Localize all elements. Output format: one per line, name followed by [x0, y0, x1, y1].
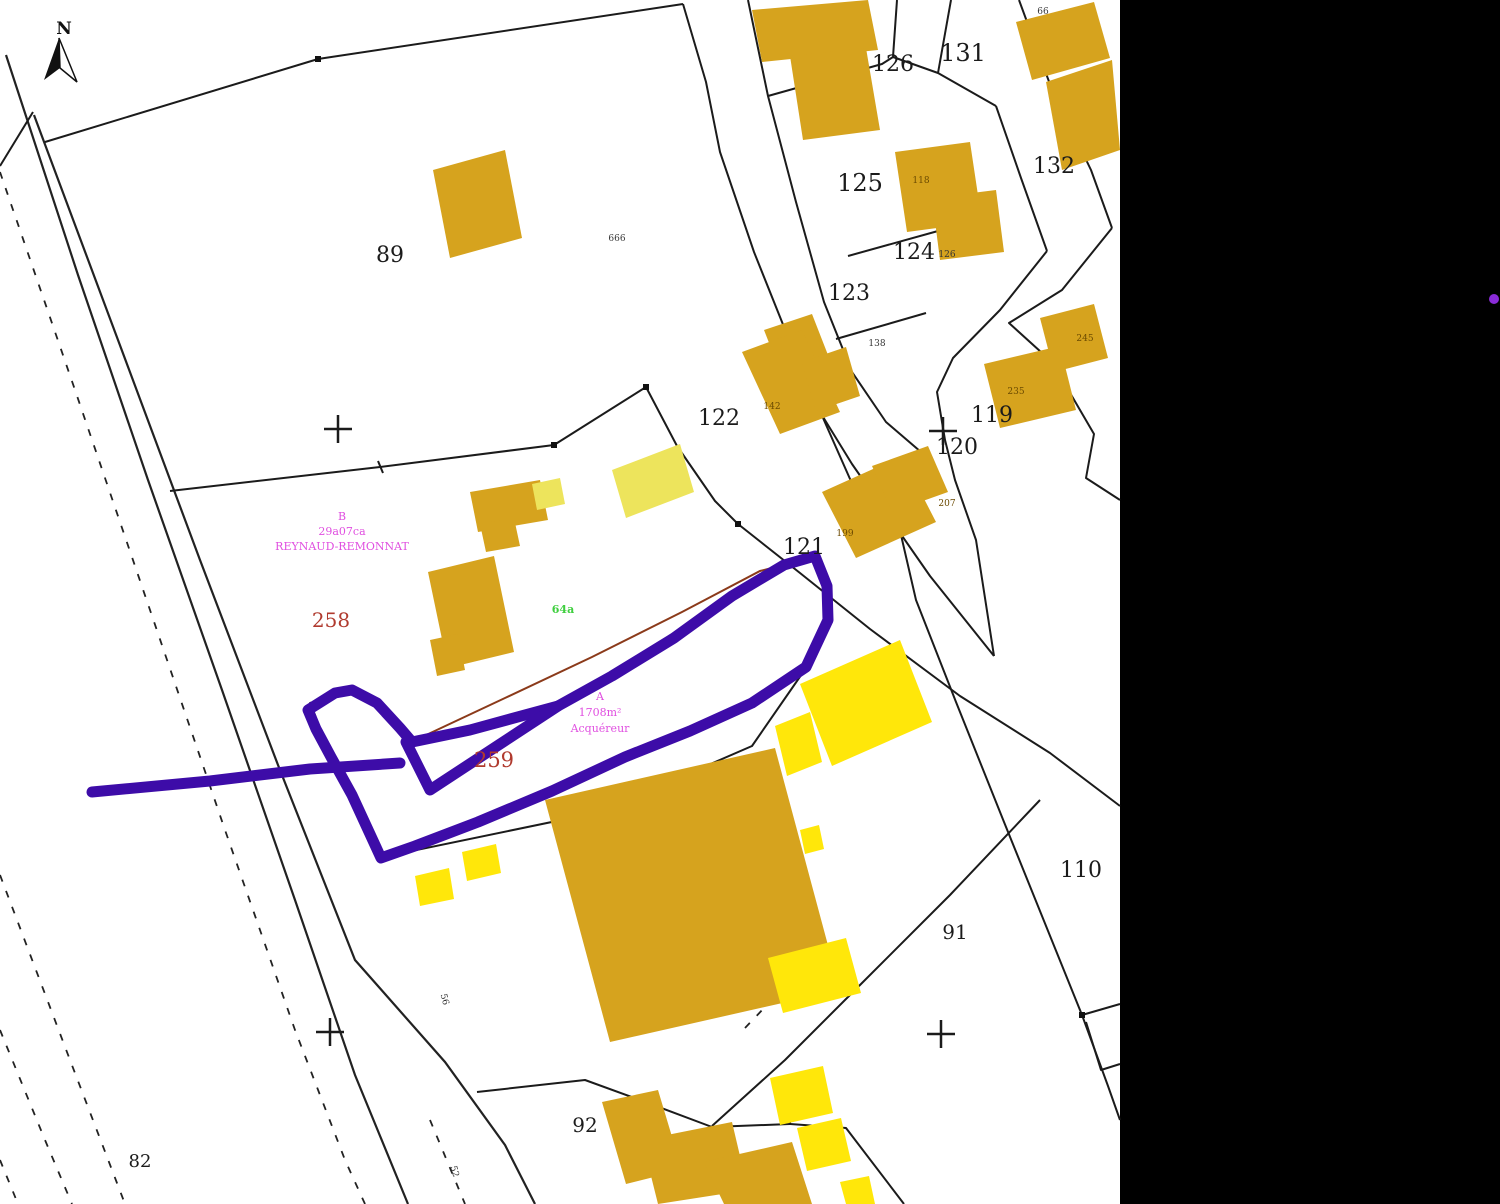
parcel-label-258: 258: [312, 608, 350, 632]
annotation-a-area: 1708m²: [579, 706, 622, 719]
north-label: N: [56, 19, 72, 39]
parcel-label-110: 110: [1060, 858, 1102, 883]
map-canvas: N 89126131125124123132122119120121110919…: [0, 0, 1500, 1204]
parcel-label-259: 259: [474, 748, 514, 772]
cadastral-map: N 89126131125124123132122119120121110919…: [0, 0, 1500, 1204]
green-note: 64a: [552, 603, 574, 616]
parcel-label-125: 125: [837, 169, 883, 197]
annotation-a-letter: A: [595, 690, 605, 703]
parcel-label-123: 123: [828, 281, 870, 306]
building-number-207: 207: [938, 499, 955, 509]
parcel-label-92: 92: [572, 1113, 597, 1137]
annotation-b-area: 29a07ca: [318, 525, 366, 538]
parcel-label-82: 82: [129, 1151, 152, 1172]
right-black-band: [1120, 0, 1500, 1204]
parcel-label-89: 89: [376, 243, 404, 268]
parcel-label-124: 124: [893, 240, 935, 265]
purple-dot-marker: [1489, 294, 1499, 304]
parcel-label-132: 132: [1033, 154, 1075, 179]
annotation-a-name: Acquéreur: [570, 722, 631, 735]
building-number-245: 245: [1076, 334, 1093, 344]
annotation-b-name: REYNAUD-REMONNAT: [275, 540, 409, 553]
building-number-142: 142: [763, 402, 780, 412]
parcel-label-126: 126: [872, 52, 914, 77]
building-number-66: 66: [1037, 7, 1049, 17]
parcel-label-122: 122: [698, 406, 740, 431]
building-number-235: 235: [1007, 387, 1024, 397]
parcel-label-119: 119: [971, 403, 1013, 428]
building-number-199: 199: [836, 529, 853, 539]
building-number-126: 126: [938, 250, 955, 260]
parcel-label-121: 121: [783, 535, 825, 560]
building-number-118: 118: [912, 176, 929, 186]
annotation-b-letter: B: [338, 510, 346, 523]
building-number-138: 138: [868, 339, 885, 349]
building-number-666: 666: [608, 234, 625, 244]
parcel-label-131: 131: [940, 39, 986, 67]
parcel-label-120: 120: [936, 435, 978, 460]
parcel-label-91: 91: [942, 920, 967, 944]
